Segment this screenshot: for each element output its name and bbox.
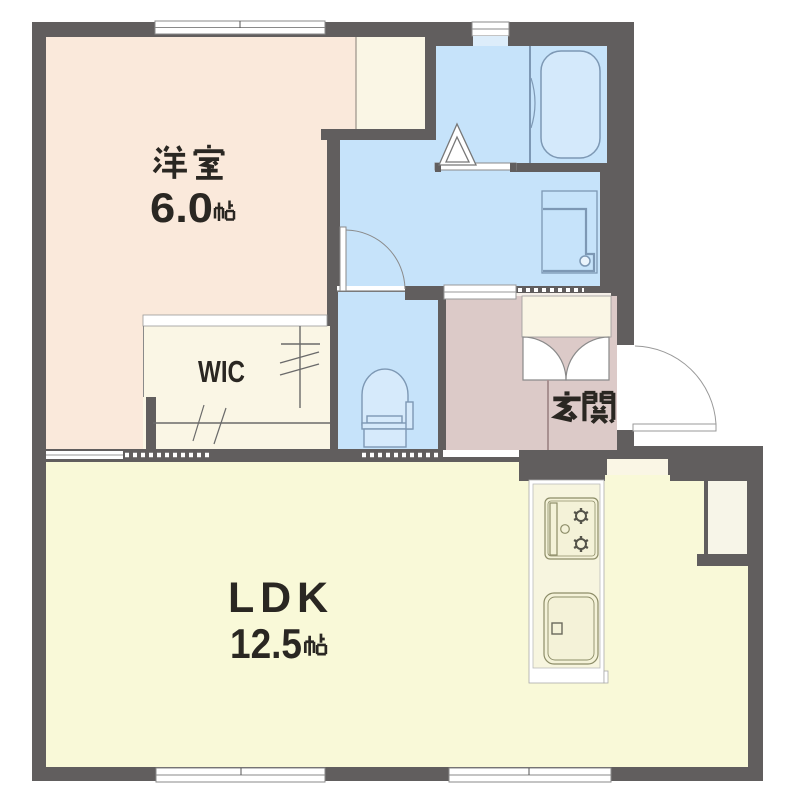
svg-text:6.0: 6.0: [150, 184, 213, 231]
svg-text:12.5: 12.5: [230, 620, 302, 667]
svg-text:LDK: LDK: [228, 574, 328, 622]
svg-text:WIC: WIC: [198, 354, 245, 389]
